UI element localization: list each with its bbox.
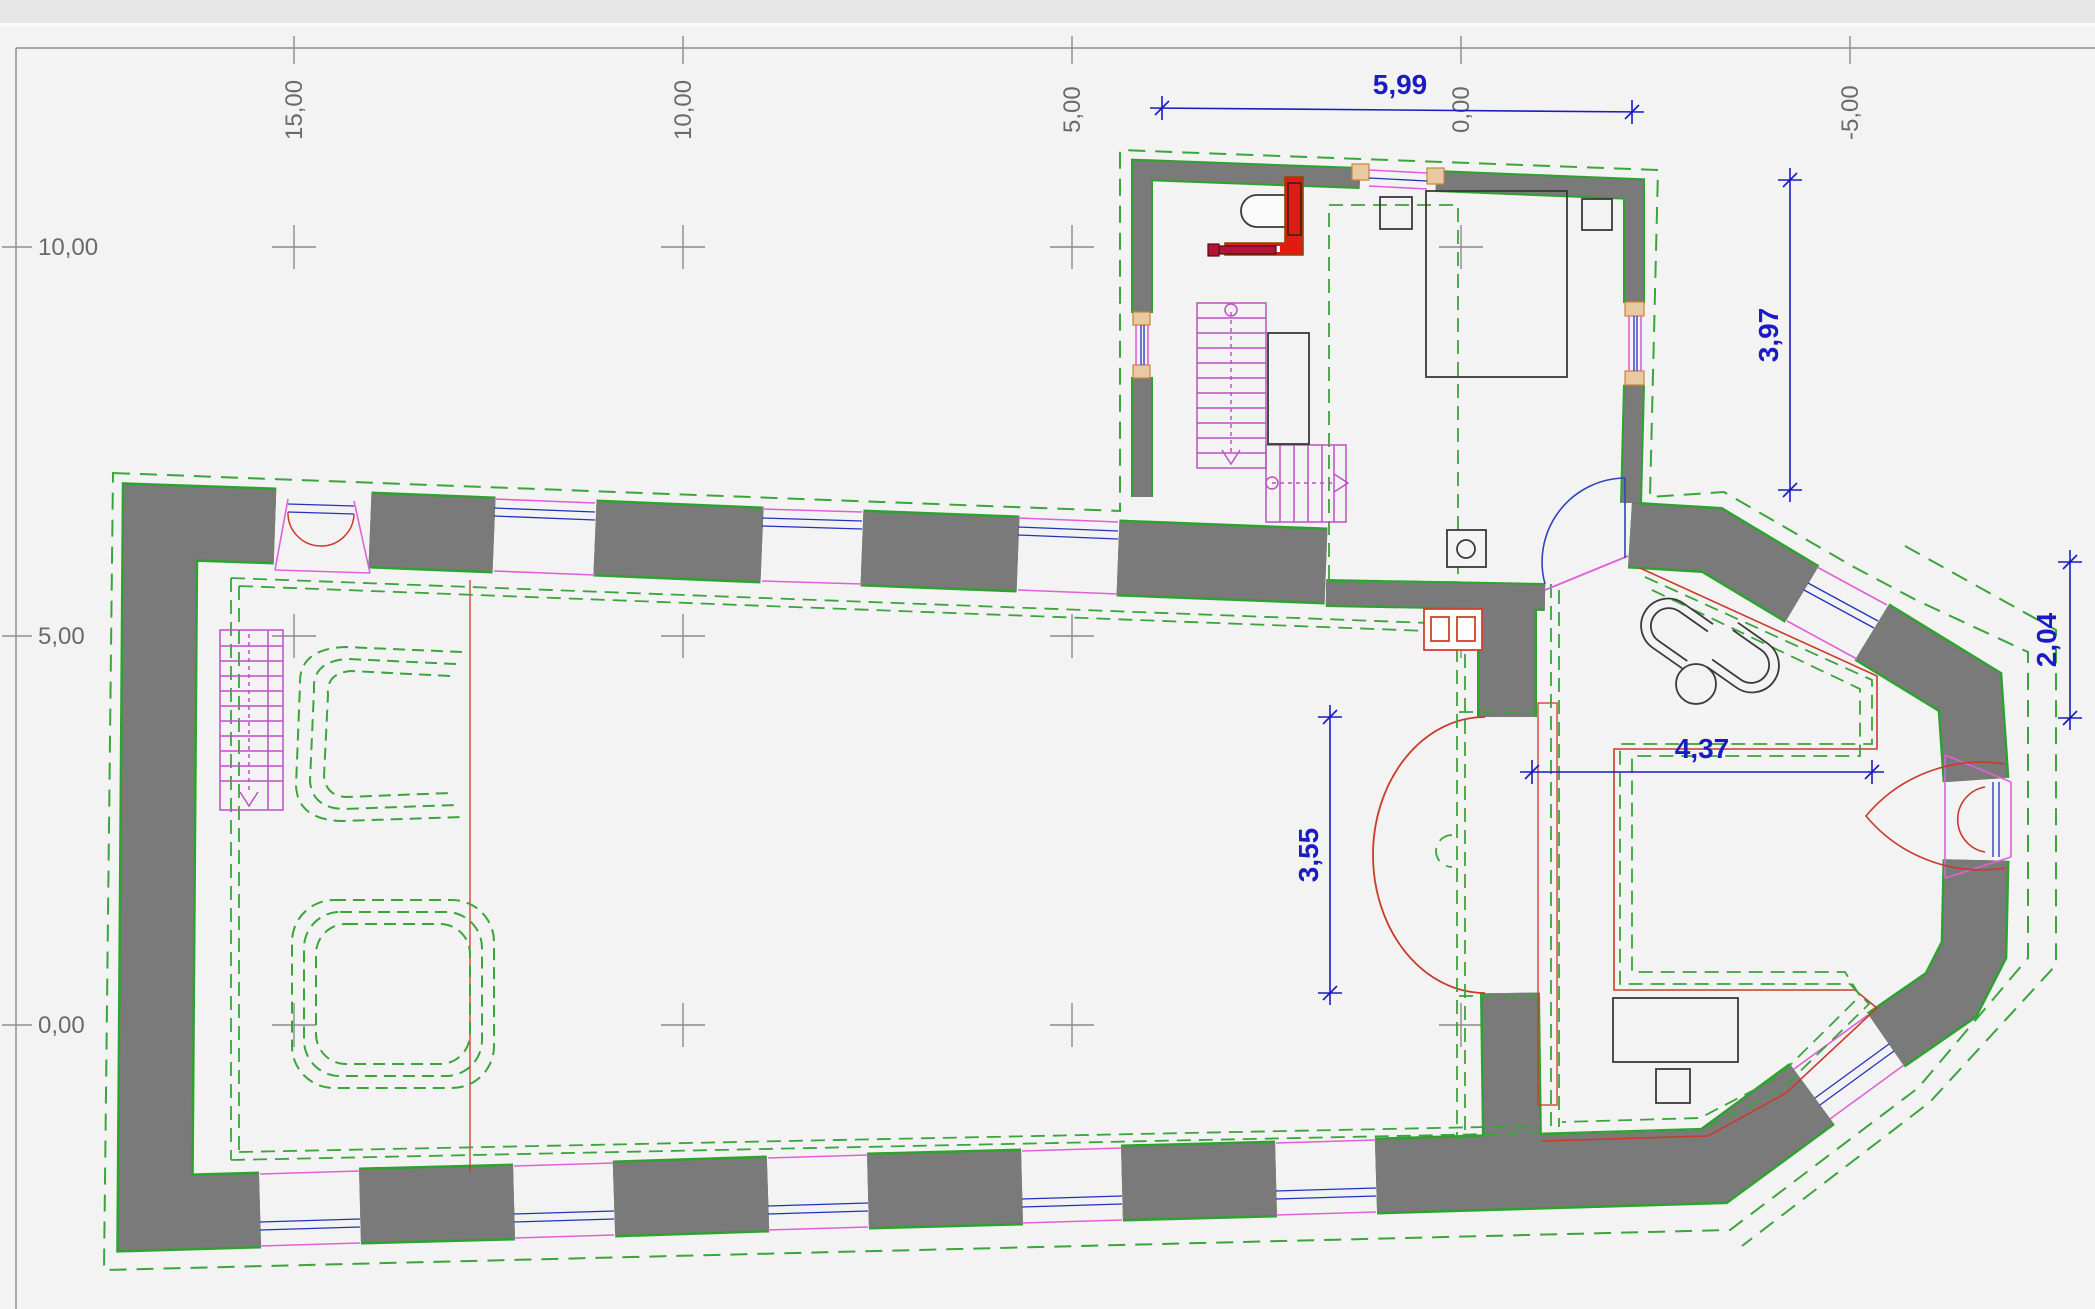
toilet <box>1241 195 1287 227</box>
armchair-2 <box>1707 623 1790 703</box>
chancel-arch-arc <box>1373 717 1485 993</box>
walls <box>155 170 1976 1213</box>
ruler-top-0: 0,00 <box>1448 86 1475 133</box>
wall-edges <box>155 170 1976 1213</box>
nightstand-left <box>1380 197 1412 229</box>
socket-symbol <box>1424 609 1482 650</box>
nightstand-right <box>1582 199 1612 230</box>
annex-door <box>1542 478 1628 590</box>
closet <box>1268 333 1309 444</box>
portal-north <box>275 499 370 573</box>
drawing-canvas[interactable]: 15,00 10,00 5,00 0,00 -5,00 10,00 5,00 0… <box>0 0 2095 1309</box>
altar-table <box>1613 998 1738 1062</box>
boiler <box>1447 530 1486 567</box>
ruler-left-10: 10,00 <box>38 234 98 261</box>
upper-floor-overlay <box>231 205 1872 1160</box>
ruler-left-0: 0,00 <box>38 1012 85 1039</box>
chancel-room-outline <box>1542 568 1877 1141</box>
ruler-top-5: 5,00 <box>1059 86 1086 133</box>
apse-window-arc <box>1958 787 1985 852</box>
faucet-rod <box>1213 246 1276 254</box>
ruler-left-5: 5,00 <box>38 623 85 650</box>
arch-wall-outline <box>1538 703 1557 1105</box>
nave-stair <box>220 630 283 810</box>
ruler-top-15: 15,00 <box>281 80 308 140</box>
dim-label-4-37: 4,37 <box>1675 733 1730 764</box>
grid-crosses <box>272 225 1483 1047</box>
small-arc <box>1436 835 1452 867</box>
bed <box>1426 191 1567 377</box>
dim-label-3-55: 3,55 <box>1293 828 1324 883</box>
dim-annex-width <box>1150 96 1644 124</box>
ruler-top-10: 10,00 <box>670 80 697 140</box>
altar-stand <box>1656 1069 1690 1103</box>
dim-label-5-99: 5,99 <box>1373 69 1428 100</box>
dim-label-2-04: 2,04 <box>2031 612 2062 667</box>
vault-outline-2 <box>292 900 494 1088</box>
cad-window: 15,00 10,00 5,00 0,00 -5,00 10,00 5,00 0… <box>0 0 2095 1309</box>
side-table <box>1676 664 1716 704</box>
annex-window-lines <box>1136 170 1641 371</box>
vault-outline-1 <box>296 647 462 821</box>
dim-label-3-97: 3,97 <box>1753 308 1784 363</box>
ruler-top-m5: -5,00 <box>1837 85 1864 140</box>
annex-stair <box>1197 303 1348 522</box>
